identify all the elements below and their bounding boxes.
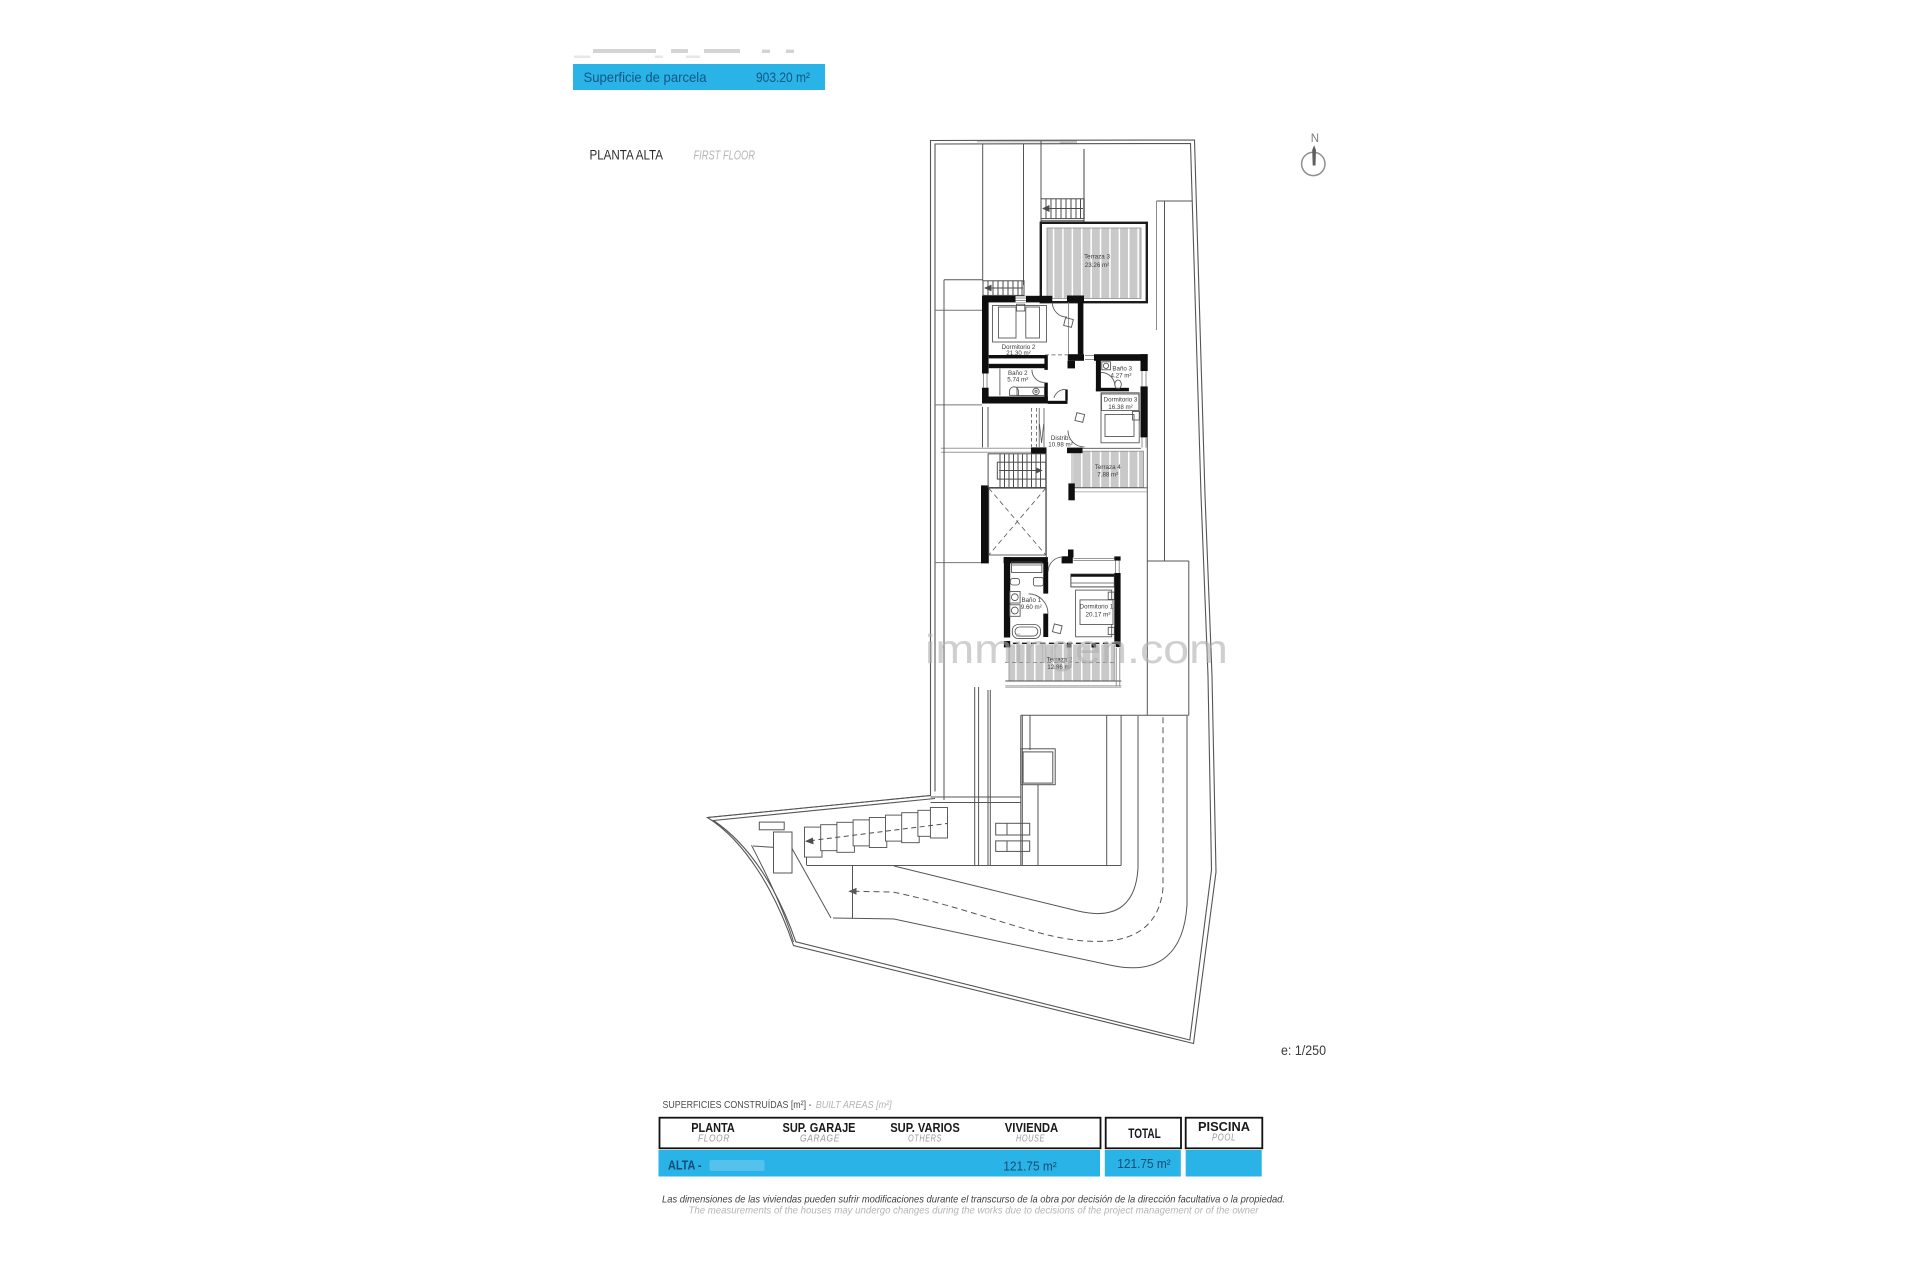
svg-text:23.26 m²: 23.26 m² (1085, 262, 1109, 269)
svg-text:immingen.com: immingen.com (925, 626, 1228, 672)
svg-text:21.30 m²: 21.30 m² (1006, 350, 1030, 357)
svg-text:121.75 m²: 121.75 m² (1117, 1156, 1171, 1171)
svg-text:e: 1/250: e: 1/250 (1281, 1043, 1326, 1058)
svg-text:Superficie de parcela: Superficie de parcela (584, 69, 707, 85)
svg-text:20.17 m²: 20.17 m² (1086, 612, 1111, 619)
svg-text:FLOOR: FLOOR (698, 1134, 730, 1145)
svg-text:Dormitorio 1: Dormitorio 1 (1080, 603, 1114, 610)
svg-text:16.38 m²: 16.38 m² (1108, 404, 1132, 411)
svg-text:TOTAL: TOTAL (1128, 1125, 1161, 1141)
svg-text:BUILT AREAS [m²]: BUILT AREAS [m²] (816, 1099, 893, 1111)
svg-text:903.20 m²: 903.20 m² (756, 69, 810, 85)
svg-text:Baño 1: Baño 1 (1021, 597, 1041, 604)
svg-text:7.88 m²: 7.88 m² (1097, 472, 1118, 479)
svg-text:Terraza 3: Terraza 3 (1084, 253, 1110, 260)
svg-text:ALTA -: ALTA - (668, 1158, 702, 1173)
svg-text:HOUSE: HOUSE (1016, 1134, 1045, 1145)
svg-text:OTHERS: OTHERS (908, 1134, 942, 1145)
svg-text:4.27 m²: 4.27 m² (1111, 372, 1132, 379)
svg-text:5.74 m²: 5.74 m² (1007, 377, 1028, 384)
svg-text:Dormitorio 3: Dormitorio 3 (1104, 397, 1138, 404)
svg-text:SUPERFICIES CONSTRUÍDAS [m²] -: SUPERFICIES CONSTRUÍDAS [m²] - (663, 1098, 812, 1111)
svg-text:Terraza 4: Terraza 4 (1095, 464, 1121, 471)
svg-text:Las dimensiones de las viviend: Las dimensiones de las viviendas pueden … (662, 1195, 1285, 1206)
svg-text:121.75 m²: 121.75 m² (1003, 1159, 1057, 1174)
svg-text:POOL: POOL (1212, 1133, 1236, 1144)
svg-text:GARAGE: GARAGE (800, 1134, 840, 1145)
svg-text:The measurements of the houses: The measurements of the houses may under… (689, 1206, 1260, 1217)
svg-text:9.60 m²: 9.60 m² (1021, 604, 1042, 611)
svg-text:N: N (1311, 133, 1319, 145)
svg-text:PLANTA ALTA: PLANTA ALTA (590, 148, 664, 163)
svg-text:FIRST FLOOR: FIRST FLOOR (694, 149, 756, 163)
svg-text:10.98 m²: 10.98 m² (1048, 441, 1072, 448)
